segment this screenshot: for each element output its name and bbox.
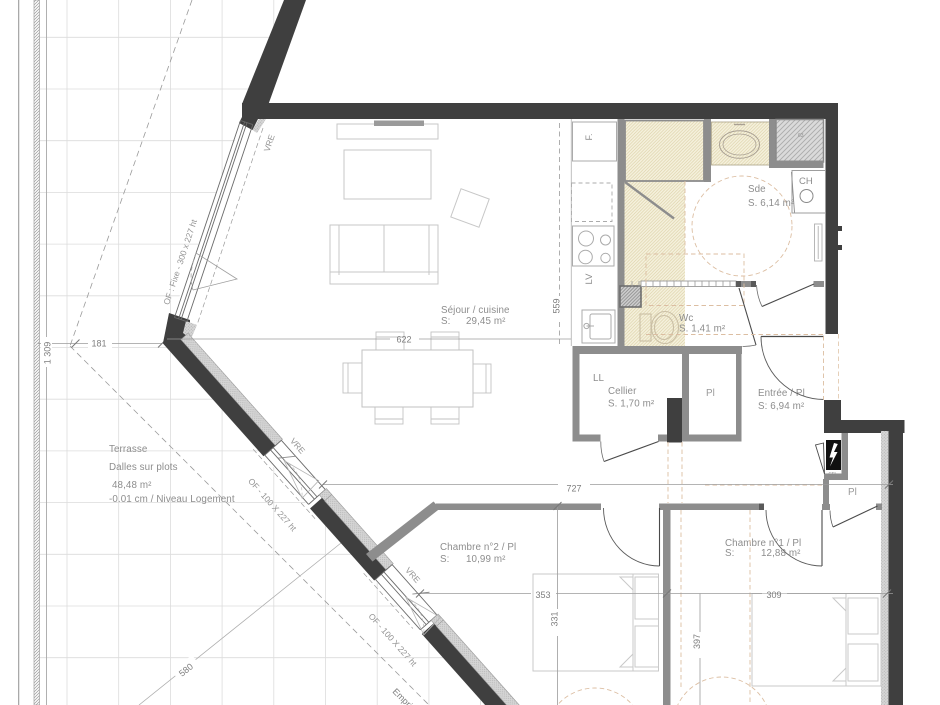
svg-text:727: 727 bbox=[566, 484, 581, 494]
svg-text:Terrasse: Terrasse bbox=[109, 444, 148, 455]
svg-text:S:: S: bbox=[440, 554, 449, 565]
svg-text:Cellier: Cellier bbox=[608, 386, 637, 397]
svg-text:10,99 m²: 10,99 m² bbox=[466, 554, 506, 565]
svg-text:S: 6,94 m²: S: 6,94 m² bbox=[758, 401, 805, 412]
svg-text:559: 559 bbox=[552, 298, 562, 313]
svg-text:CFL: CFL bbox=[829, 471, 838, 476]
svg-text:48,48 m²: 48,48 m² bbox=[112, 480, 152, 491]
svg-text:Pl: Pl bbox=[706, 388, 715, 399]
svg-text:Wc: Wc bbox=[679, 313, 693, 324]
svg-text:181: 181 bbox=[91, 339, 106, 349]
svg-text:353: 353 bbox=[535, 590, 550, 600]
svg-text:Sde: Sde bbox=[748, 184, 766, 195]
svg-text:CH: CH bbox=[799, 176, 813, 187]
svg-text:Séjour / cuisine: Séjour / cuisine bbox=[441, 305, 510, 316]
svg-text:LL: LL bbox=[593, 373, 605, 384]
svg-text:29,45 m²: 29,45 m² bbox=[466, 316, 506, 327]
svg-text:Dalles sur plots: Dalles sur plots bbox=[109, 462, 178, 473]
svg-text:622: 622 bbox=[396, 335, 411, 345]
svg-text:Pl: Pl bbox=[848, 487, 857, 498]
svg-text:331: 331 bbox=[550, 611, 560, 626]
svg-text:309: 309 bbox=[766, 590, 781, 600]
svg-text:12,88 m²: 12,88 m² bbox=[761, 548, 801, 559]
svg-text:397: 397 bbox=[692, 634, 702, 649]
svg-text:S. 6,14 m²: S. 6,14 m² bbox=[748, 198, 795, 209]
svg-text:Chambre n°2 / Pl: Chambre n°2 / Pl bbox=[440, 542, 516, 553]
svg-text:-0.01 cm / Niveau Logement: -0.01 cm / Niveau Logement bbox=[109, 494, 235, 505]
svg-text:S. 1,41 m²: S. 1,41 m² bbox=[679, 324, 726, 335]
svg-text:Entrée / Pl: Entrée / Pl bbox=[758, 388, 805, 399]
svg-text:63: 63 bbox=[798, 133, 804, 139]
svg-text:S. 1,70 m²: S. 1,70 m² bbox=[608, 399, 655, 410]
svg-text:S:: S: bbox=[725, 548, 734, 559]
svg-text:S:: S: bbox=[441, 316, 450, 327]
svg-text:LV: LV bbox=[584, 273, 595, 285]
svg-text:F.: F. bbox=[584, 133, 594, 140]
svg-text:1 309: 1 309 bbox=[43, 342, 53, 365]
